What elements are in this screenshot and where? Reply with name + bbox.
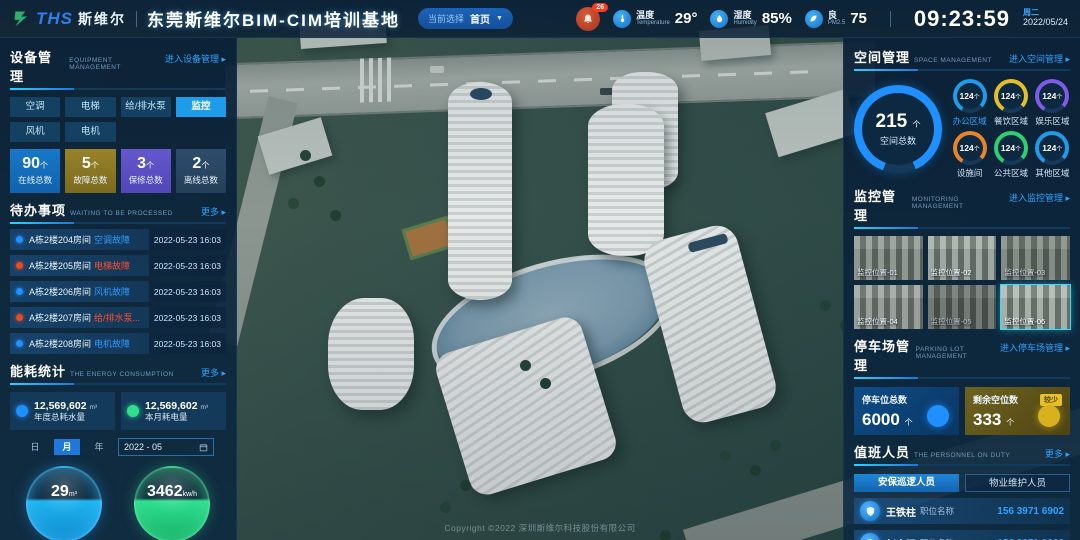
status-cluster: 26 温度Temperature 29° 湿度Humidity 85% 良PM2… bbox=[576, 6, 1068, 32]
todo-item[interactable]: A栋2楼204房间 空调故障 2022-05-23 16:03 bbox=[10, 229, 226, 250]
status-dot-icon bbox=[16, 340, 23, 347]
todo-section-header: 待办事项 WAITING TO BE PROCESSED 更多 ▸ bbox=[10, 200, 226, 219]
chevron-down-icon: ▼ bbox=[496, 15, 503, 22]
camera-thumbnail[interactable]: 监控位置-02 bbox=[928, 236, 997, 280]
weather-humidity: 湿度Humidity 85% bbox=[710, 10, 791, 28]
section-title: 监控管理 bbox=[854, 186, 908, 224]
divider bbox=[136, 11, 137, 27]
section-subtitle: MONITORING MANAGEMENT bbox=[912, 196, 1009, 210]
air-quality-icon bbox=[805, 10, 823, 28]
water-dot-icon bbox=[16, 405, 28, 417]
status-dot-icon bbox=[16, 314, 23, 321]
status-dot-icon bbox=[16, 288, 23, 295]
link-arrow-icon: ▸ bbox=[219, 368, 226, 378]
weather-label-cn: 温度 bbox=[636, 11, 670, 20]
ring-other-area: 124个 其他区域 bbox=[1035, 131, 1070, 179]
camera-thumbnail[interactable]: 监控位置-03 bbox=[1001, 236, 1070, 280]
security-badge-icon bbox=[860, 533, 880, 540]
personnel-row[interactable]: 王铁柱 职位名称 156 3971 6902 bbox=[854, 498, 1070, 524]
divider bbox=[890, 11, 891, 27]
energy-more-link[interactable]: 更多 ▸ bbox=[201, 366, 226, 379]
weather-label-cn: 湿度 bbox=[733, 11, 756, 20]
equipment-tabs: 空调 电梯 给/排水泵 监控 风机 电机 bbox=[10, 97, 226, 142]
left-panel: 设备管理 EQUIPMENT MANAGEMENT 进入设备管理 ▸ 空调 电梯… bbox=[0, 38, 237, 540]
tab-monitoring[interactable]: 监控 bbox=[176, 97, 226, 117]
section-title: 值班人员 bbox=[854, 442, 910, 461]
link-arrow-icon: ▸ bbox=[219, 54, 226, 64]
weather-label-en: Temperature bbox=[636, 20, 670, 26]
stat-maintenance-total: 3个 保修总数 bbox=[121, 149, 171, 193]
water-sphere: 29m³ bbox=[26, 466, 102, 540]
right-panel: 空间管理 SPACE MANAGEMENT 进入空间管理 ▸ 215 个 空间总… bbox=[843, 38, 1080, 540]
section-subtitle: EQUIPMENT MANAGEMENT bbox=[69, 57, 165, 71]
date-picker-field[interactable]: 2022 - 05 bbox=[118, 438, 214, 456]
space-category-rings: 124个 办公区域 124个 餐饮区域 124个 娱乐区域 124个 设施间 1… bbox=[952, 79, 1070, 179]
energy-section-header: 能耗统计 THE ENERGY CONSUMPTION 更多 ▸ bbox=[10, 361, 226, 380]
section-underline bbox=[854, 377, 1070, 379]
period-day-button[interactable]: 日 bbox=[22, 439, 48, 455]
equipment-stats: 90个 在线总数 5个 故障总数 3个 保修总数 2个 离线总数 bbox=[10, 149, 226, 193]
link-arrow-icon: ▸ bbox=[1063, 343, 1070, 353]
camera-thumbnail-selected[interactable]: 监控位置-06 bbox=[1001, 285, 1070, 329]
section-title: 设备管理 bbox=[10, 47, 65, 85]
section-title: 停车场管理 bbox=[854, 336, 912, 374]
tab-elevator[interactable]: 电梯 bbox=[65, 97, 115, 117]
alarm-bell-icon[interactable]: 26 bbox=[576, 7, 600, 31]
ths-logo-icon bbox=[12, 9, 32, 29]
monitoring-section-header: 监控管理 MONITORING MANAGEMENT 进入监控管理 ▸ bbox=[854, 186, 1070, 224]
section-title: 空间管理 bbox=[854, 47, 910, 66]
parking-cards: 停车位总数 6000 个 剩余空位数 较少 333 个 bbox=[854, 387, 1070, 435]
ring-public-area: 124个 公共区域 bbox=[993, 131, 1028, 179]
link-arrow-icon: ▸ bbox=[1063, 54, 1070, 64]
status-dot-icon bbox=[16, 236, 23, 243]
tab-fan[interactable]: 风机 bbox=[10, 122, 60, 142]
enter-equipment-link[interactable]: 进入设备管理 ▸ bbox=[165, 52, 226, 65]
air-quality-label-en: PM2.5 bbox=[828, 20, 845, 26]
weather-temperature: 温度Temperature 29° bbox=[613, 10, 697, 28]
camera-thumbnail[interactable]: 监控位置-01 bbox=[854, 236, 923, 280]
link-arrow-icon: ▸ bbox=[219, 207, 226, 217]
todo-item[interactable]: A栋2楼207房间 给/排水泵... 2022-05-23 16:03 bbox=[10, 307, 226, 328]
todo-item[interactable]: A栋2楼206房间 风机故障 2022-05-23 16:03 bbox=[10, 281, 226, 302]
section-underline bbox=[854, 227, 1070, 229]
space-section-header: 空间管理 SPACE MANAGEMENT 进入空间管理 ▸ bbox=[854, 47, 1070, 66]
space-total-ring: 215 个 空间总数 bbox=[854, 85, 942, 173]
link-arrow-icon: ▸ bbox=[1063, 449, 1070, 459]
selector-value: 首页 bbox=[470, 11, 490, 26]
equipment-section-header: 设备管理 EQUIPMENT MANAGEMENT 进入设备管理 ▸ bbox=[10, 47, 226, 85]
space-stats: 215 个 空间总数 124个 办公区域 124个 餐饮区域 124个 娱乐区域 bbox=[854, 79, 1070, 179]
link-arrow-icon: ▸ bbox=[1063, 193, 1070, 203]
brand-name: 斯维尔 bbox=[78, 9, 126, 29]
parking-section-header: 停车场管理 PARKING LOT MANAGEMENT 进入停车场管理 ▸ bbox=[854, 336, 1070, 374]
page-selector-dropdown[interactable]: 当前选择 首页 ▼ bbox=[418, 8, 513, 29]
section-title: 能耗统计 bbox=[10, 361, 66, 380]
ring-office-area: 124个 办公区域 bbox=[952, 79, 987, 127]
stat-online-total: 90个 在线总数 bbox=[10, 149, 60, 193]
parking-remaining-card: 剩余空位数 较少 333 个 bbox=[965, 387, 1070, 435]
ring-facility-room: 124个 设施间 bbox=[952, 131, 987, 179]
personnel-row[interactable]: 赵大强 职位名称 156 3971 6902 bbox=[854, 530, 1070, 540]
parking-total-card: 停车位总数 6000 个 bbox=[854, 387, 959, 435]
period-year-button[interactable]: 年 bbox=[86, 439, 112, 455]
electricity-consumption-card: 12,569,602 m³ 本月耗电量 bbox=[121, 392, 226, 430]
todo-item[interactable]: A栋2楼205房间 电梯故障 2022-05-23 16:03 bbox=[10, 255, 226, 276]
personnel-more-link[interactable]: 更多 ▸ bbox=[1045, 447, 1070, 460]
water-consumption-card: 12,569,602 m³ 年度总耗水量 bbox=[10, 392, 115, 430]
section-underline bbox=[10, 222, 226, 224]
section-subtitle: SPACE MANAGEMENT bbox=[914, 57, 992, 64]
ring-dining-area: 124个 餐饮区域 bbox=[993, 79, 1028, 127]
section-title: 待办事项 bbox=[10, 200, 66, 219]
air-quality-value: 75 bbox=[850, 10, 867, 27]
copyright: Copyright ©2022 深圳斯维尔科技股份有限公司 bbox=[237, 522, 843, 534]
camera-thumbnail[interactable]: 监控位置-05 bbox=[928, 285, 997, 329]
enter-monitoring-link[interactable]: 进入监控管理 ▸ bbox=[1009, 191, 1070, 204]
temperature-value: 29° bbox=[675, 10, 698, 27]
humidity-value: 85% bbox=[762, 10, 792, 27]
section-underline bbox=[10, 88, 226, 90]
dashboard: THS 斯维尔 东莞斯维尔BIM-CIM培训基地 当前选择 首页 ▼ 26 温度… bbox=[0, 0, 1080, 540]
energy-cards: 12,569,602 m³ 年度总耗水量 12,569,602 m³ 本月耗电量 bbox=[10, 392, 226, 430]
section-subtitle: THE PERSONNEL ON DUTY bbox=[914, 452, 1010, 459]
parking-total-icon bbox=[927, 405, 949, 427]
section-underline bbox=[10, 383, 226, 385]
tab-property-maintenance[interactable]: 物业维护人员 bbox=[965, 474, 1070, 492]
logo-text: THS bbox=[36, 9, 73, 29]
section-subtitle: WAITING TO BE PROCESSED bbox=[70, 210, 173, 217]
section-underline bbox=[854, 69, 1070, 71]
tab-water-pump[interactable]: 给/排水泵 bbox=[121, 97, 171, 117]
tab-air-conditioner[interactable]: 空调 bbox=[10, 97, 60, 117]
alarm-count-badge: 26 bbox=[592, 3, 608, 12]
top-bar: THS 斯维尔 东莞斯维尔BIM-CIM培训基地 当前选择 首页 ▼ 26 温度… bbox=[0, 0, 1080, 38]
section-subtitle: PARKING LOT MANAGEMENT bbox=[916, 346, 1000, 360]
calendar-icon bbox=[199, 443, 208, 452]
electricity-sphere: 3462kw/h bbox=[134, 466, 210, 540]
camera-grid: 监控位置-01 监控位置-02 监控位置-03 监控位置-04 监控位置-05 … bbox=[854, 236, 1070, 329]
section-subtitle: THE ENERGY CONSUMPTION bbox=[70, 371, 174, 378]
usage-gauges: 29m³ 本月用水 3462kw/h 本月用电 bbox=[10, 466, 226, 540]
selector-label: 当前选择 bbox=[428, 12, 464, 25]
camera-thumbnail[interactable]: 监控位置-04 bbox=[854, 285, 923, 329]
enter-space-link[interactable]: 进入空间管理 ▸ bbox=[1009, 52, 1070, 65]
tab-motor[interactable]: 电机 bbox=[65, 122, 115, 142]
weather-label-en: Humidity bbox=[733, 20, 756, 26]
section-underline bbox=[854, 464, 1070, 466]
tab-security-patrol[interactable]: 安保巡逻人员 bbox=[854, 474, 959, 492]
water-gauge: 29m³ 本月用水 bbox=[23, 466, 105, 540]
period-toggle: 日 月 年 2022 - 05 bbox=[10, 438, 226, 456]
todo-more-link[interactable]: 更多 ▸ bbox=[201, 205, 226, 218]
weather-air-quality: 良PM2.5 75 bbox=[805, 10, 867, 28]
todo-item[interactable]: A栋2楼208房间 电机故障 2022-05-23 16:03 bbox=[10, 333, 226, 354]
humidity-icon bbox=[710, 10, 728, 28]
temperature-icon bbox=[613, 10, 631, 28]
electricity-gauge: 3462kw/h 本月用电 bbox=[131, 466, 213, 540]
stat-fault-total: 5个 故障总数 bbox=[65, 149, 115, 193]
air-quality-label-cn: 良 bbox=[828, 11, 845, 20]
parking-remaining-icon bbox=[1038, 405, 1060, 427]
date: 2022/05/24 bbox=[1023, 18, 1068, 28]
enter-parking-link[interactable]: 进入停车场管理 ▸ bbox=[1000, 341, 1070, 354]
ring-entertainment-area: 124个 娱乐区域 bbox=[1035, 79, 1070, 127]
status-dot-icon bbox=[16, 262, 23, 269]
electricity-dot-icon bbox=[127, 405, 139, 417]
personnel-tabs: 安保巡逻人员 物业维护人员 bbox=[854, 474, 1070, 492]
stat-offline-total: 2个 离线总数 bbox=[176, 149, 226, 193]
clock: 09:23:59 bbox=[914, 6, 1010, 32]
period-month-button[interactable]: 月 bbox=[54, 439, 80, 455]
security-badge-icon bbox=[860, 501, 880, 521]
personnel-section-header: 值班人员 THE PERSONNEL ON DUTY 更多 ▸ bbox=[854, 442, 1070, 461]
page-title: 东莞斯维尔BIM-CIM培训基地 bbox=[147, 6, 400, 31]
